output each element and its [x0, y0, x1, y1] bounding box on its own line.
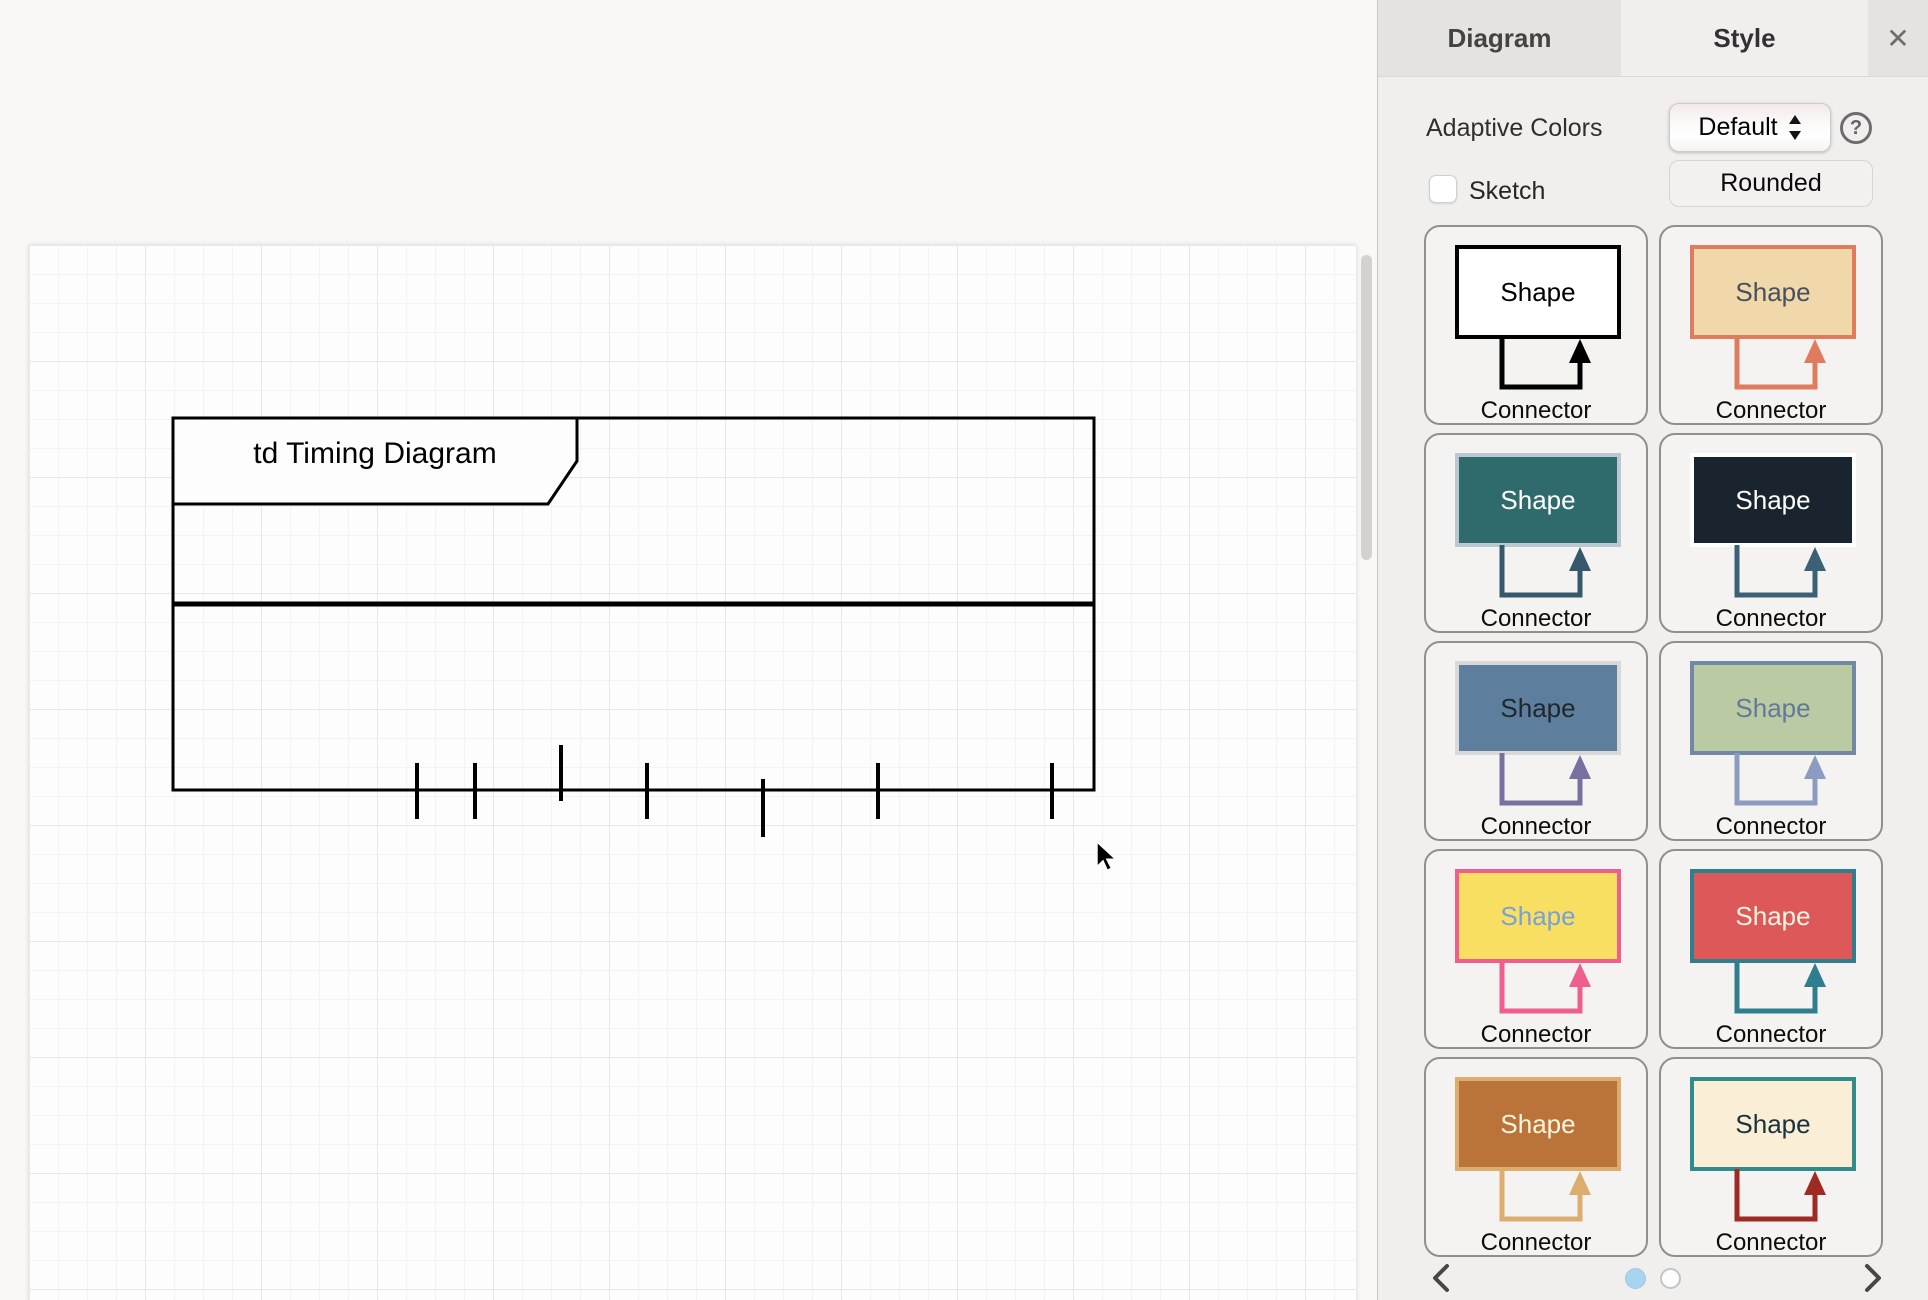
preset-shape-sample: Shape	[1690, 869, 1856, 963]
style-preset-card[interactable]: ShapeConnector	[1659, 641, 1883, 841]
dropdown-value: Default	[1698, 113, 1777, 142]
style-preset-card[interactable]: ShapeConnector	[1424, 225, 1648, 425]
preset-connector-sample	[1723, 751, 1829, 813]
preset-connector-label: Connector	[1426, 1229, 1646, 1257]
preset-connector-sample	[1488, 751, 1594, 813]
pagination-dot-active[interactable]	[1625, 1268, 1646, 1289]
preset-shape-sample: Shape	[1690, 245, 1856, 339]
style-preset-card[interactable]: ShapeConnector	[1424, 433, 1648, 633]
tab-style[interactable]: Style	[1621, 0, 1868, 76]
format-panel-tabbar: Diagram Style ✕	[1378, 0, 1928, 77]
preset-shape-sample: Shape	[1455, 661, 1621, 755]
preset-shape-sample: Shape	[1455, 245, 1621, 339]
preset-connector-sample	[1723, 1167, 1829, 1229]
preset-connector-sample	[1488, 543, 1594, 605]
panel-close-button[interactable]: ✕	[1868, 0, 1928, 76]
style-preset-card[interactable]: ShapeConnector	[1424, 641, 1648, 841]
sketch-label: Sketch	[1469, 177, 1545, 206]
preset-connector-label: Connector	[1661, 1229, 1881, 1257]
preset-shape-sample: Shape	[1455, 1077, 1621, 1171]
preset-connector-label: Connector	[1661, 1021, 1881, 1049]
preset-connector-sample	[1723, 335, 1829, 397]
preset-connector-sample	[1488, 335, 1594, 397]
adaptive-colors-dropdown[interactable]: Default	[1669, 103, 1831, 152]
mouse-cursor-icon	[1095, 841, 1121, 873]
preset-shape-sample: Shape	[1455, 869, 1621, 963]
timing-diagram-frame[interactable]: td Timing Diagram	[0, 0, 1377, 1300]
preset-connector-label: Connector	[1426, 605, 1646, 633]
rounded-button[interactable]: Rounded	[1669, 160, 1873, 207]
drawing-canvas[interactable]: td Timing Diagram	[0, 0, 1377, 1300]
style-preset-card[interactable]: ShapeConnector	[1424, 849, 1648, 1049]
preset-shape-sample: Shape	[1690, 453, 1856, 547]
format-panel: Diagram Style ✕ Adaptive Colors Default …	[1377, 0, 1928, 1300]
updown-arrows-icon	[1788, 114, 1802, 141]
preset-connector-label: Connector	[1661, 813, 1881, 841]
pagination-next-button[interactable]	[1862, 1262, 1884, 1294]
preset-shape-sample: Shape	[1455, 453, 1621, 547]
pagination-dots	[1378, 1256, 1928, 1300]
sketch-checkbox[interactable]	[1429, 175, 1457, 203]
close-icon: ✕	[1886, 22, 1909, 55]
help-icon[interactable]: ?	[1840, 112, 1872, 144]
style-grid-pagination	[1378, 1256, 1928, 1300]
style-preset-card[interactable]: ShapeConnector	[1659, 1057, 1883, 1257]
preset-connector-label: Connector	[1426, 813, 1646, 841]
style-preset-card[interactable]: ShapeConnector	[1659, 849, 1883, 1049]
preset-connector-label: Connector	[1426, 397, 1646, 425]
preset-shape-sample: Shape	[1690, 1077, 1856, 1171]
frame-title-label: td Timing Diagram	[253, 437, 496, 470]
pagination-dot[interactable]	[1660, 1268, 1681, 1289]
preset-connector-sample	[1723, 959, 1829, 1021]
tab-diagram[interactable]: Diagram	[1378, 0, 1621, 76]
preset-shape-sample: Shape	[1690, 661, 1856, 755]
style-preset-card[interactable]: ShapeConnector	[1424, 1057, 1648, 1257]
preset-connector-label: Connector	[1426, 1021, 1646, 1049]
preset-connector-sample	[1488, 959, 1594, 1021]
preset-connector-sample	[1723, 543, 1829, 605]
style-preset-card[interactable]: ShapeConnector	[1659, 433, 1883, 633]
style-preset-card[interactable]: ShapeConnector	[1659, 225, 1883, 425]
preset-connector-label: Connector	[1661, 397, 1881, 425]
adaptive-colors-label: Adaptive Colors	[1426, 114, 1602, 143]
preset-connector-label: Connector	[1661, 605, 1881, 633]
vertical-scrollbar[interactable]	[1361, 255, 1372, 560]
preset-connector-sample	[1488, 1167, 1594, 1229]
